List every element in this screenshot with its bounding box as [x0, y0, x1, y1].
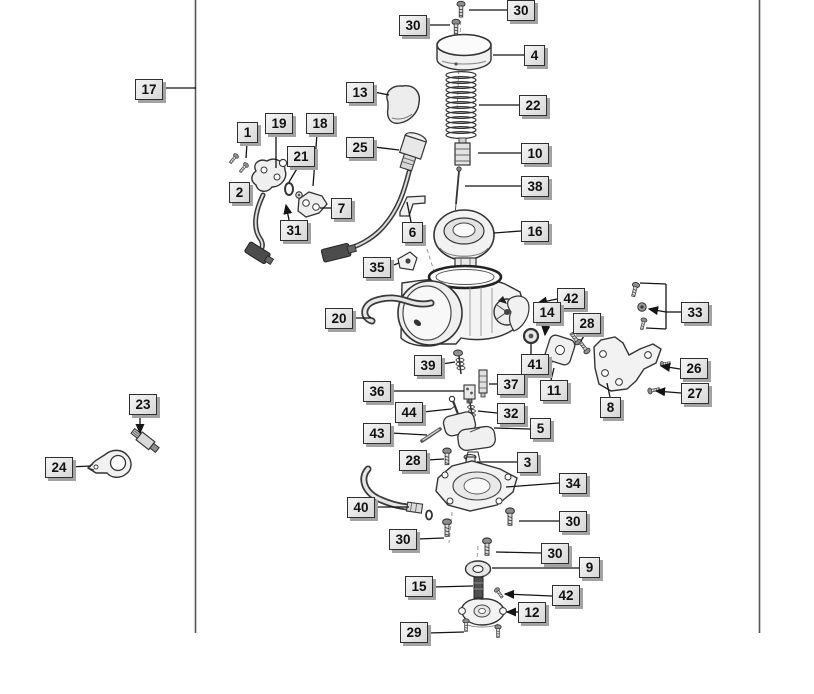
part-8-bracket: [594, 337, 661, 391]
part-label-8[interactable]: 8: [600, 397, 621, 418]
part-label-39[interactable]: 39: [414, 355, 442, 376]
part-35-adjuster: [398, 252, 417, 270]
part-label-27[interactable]: 27: [681, 383, 709, 404]
part-label-3[interactable]: 3: [517, 452, 538, 473]
part-label-30[interactable]: 30: [559, 511, 587, 532]
part-9-washer: [466, 561, 491, 577]
part-label-28[interactable]: 28: [573, 313, 601, 334]
part-label-36[interactable]: 36: [363, 381, 391, 402]
part-label-23[interactable]: 23: [129, 394, 157, 415]
part-label-20[interactable]: 20: [325, 308, 353, 329]
part-label-9[interactable]: 9: [579, 557, 600, 578]
part-label-19[interactable]: 19: [265, 113, 293, 134]
part-label-11[interactable]: 11: [540, 380, 568, 401]
part-label-13[interactable]: 13: [346, 82, 374, 103]
part-label-29[interactable]: 29: [400, 622, 428, 643]
part-10-jet-holder: [455, 138, 470, 165]
part-label-14[interactable]: 14: [533, 302, 561, 323]
diagram-canvas: 3030422171311918212527316103816352042142…: [0, 0, 814, 694]
part-23-sensor: [130, 427, 161, 454]
part-label-42[interactable]: 42: [552, 585, 580, 606]
part-4-top-cover: [437, 35, 491, 71]
part-label-15[interactable]: 15: [405, 576, 433, 597]
part-label-30[interactable]: 30: [399, 15, 427, 36]
part-42-screw: [494, 587, 505, 599]
part-label-25[interactable]: 25: [346, 137, 374, 158]
part-label-18[interactable]: 18: [306, 113, 334, 134]
part-label-40[interactable]: 40: [347, 497, 375, 518]
part-label-10[interactable]: 10: [521, 143, 549, 164]
part-26-screw: [660, 360, 671, 367]
part-label-37[interactable]: 37: [497, 374, 525, 395]
part-label-6[interactable]: 6: [402, 222, 423, 243]
part-1-screws: [228, 153, 249, 174]
part-44-float-valve: [449, 396, 458, 414]
part-label-26[interactable]: 26: [680, 358, 708, 379]
part-label-17[interactable]: 17: [135, 79, 163, 100]
part-label-34[interactable]: 34: [559, 473, 587, 494]
part-label-5[interactable]: 5: [530, 418, 551, 439]
part-5-float: [442, 410, 496, 451]
part-label-33[interactable]: 33: [681, 302, 709, 323]
part-label-12[interactable]: 12: [518, 602, 546, 623]
part-label-4[interactable]: 4: [524, 45, 545, 66]
screw-30-left: [452, 19, 460, 35]
screw-30-bottom-right: [506, 508, 515, 525]
part-label-28[interactable]: 28: [399, 450, 427, 471]
part-label-44[interactable]: 44: [395, 402, 423, 423]
part-27-screw: [647, 386, 660, 394]
part-label-30[interactable]: 30: [389, 529, 417, 550]
part-2-cable: [244, 195, 275, 267]
part-label-21[interactable]: 21: [287, 146, 315, 167]
part-38-needle: [456, 167, 462, 210]
part-16-vacuum-slide: [434, 210, 494, 271]
part-6-bracket: [400, 196, 425, 216]
part-24-lever: [88, 450, 131, 477]
part-37-jet: [479, 370, 487, 397]
part-43-float-pin: [422, 429, 440, 441]
part-label-42[interactable]: 42: [557, 288, 585, 309]
part-label-32[interactable]: 32: [497, 403, 525, 424]
part-label-7[interactable]: 7: [331, 198, 352, 219]
part-label-24[interactable]: 24: [45, 457, 73, 478]
part-label-43[interactable]: 43: [363, 423, 391, 444]
part-label-30[interactable]: 30: [507, 0, 535, 21]
part-label-31[interactable]: 31: [280, 220, 308, 241]
part-label-35[interactable]: 35: [363, 257, 391, 278]
part-28-screw-lower: [443, 448, 451, 465]
part-15-jet-extension: [474, 577, 483, 598]
part-13-boot: [387, 86, 419, 124]
part-39-screw-spring: [454, 350, 466, 374]
part-label-1[interactable]: 1: [237, 122, 258, 143]
part-label-30[interactable]: 30: [541, 543, 569, 564]
part-33-screws: [630, 282, 648, 331]
part-22-spring: [446, 72, 476, 139]
screw-30-bottom-center: [483, 538, 492, 555]
part-label-22[interactable]: 22: [519, 95, 547, 116]
part-label-2[interactable]: 2: [229, 182, 250, 203]
part-label-16[interactable]: 16: [521, 221, 549, 242]
part-21-oring: [285, 183, 293, 195]
screw-30-top: [457, 1, 465, 17]
part-19-sensor: [252, 159, 287, 191]
part-41-grommet: [524, 329, 538, 343]
part-label-38[interactable]: 38: [521, 176, 549, 197]
part-label-41[interactable]: 41: [521, 354, 549, 375]
